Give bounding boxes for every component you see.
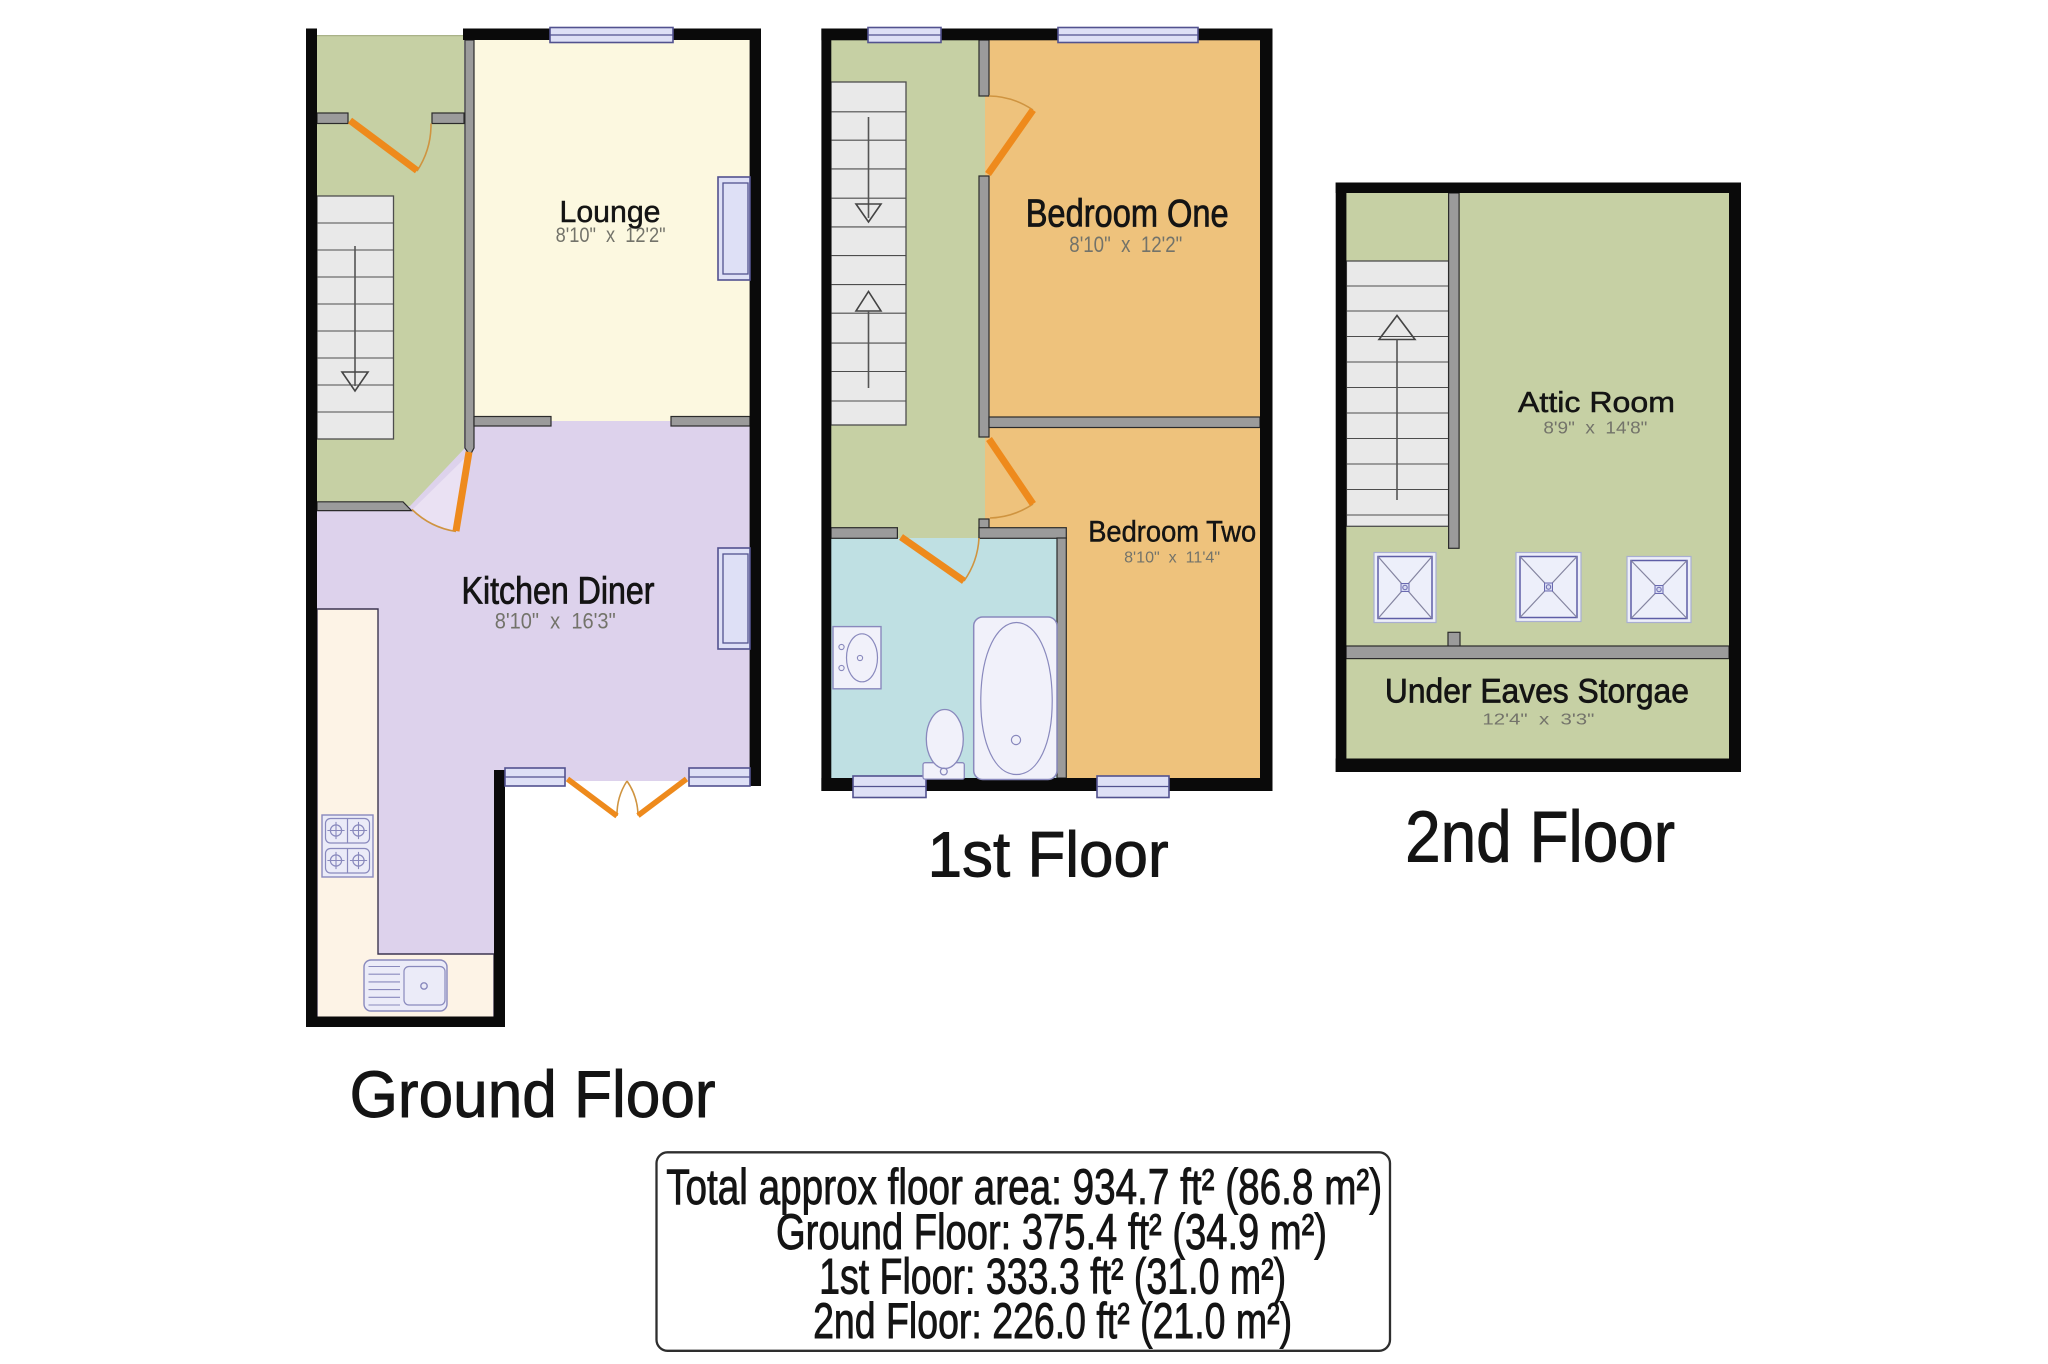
- svg-text:Bedroom One: Bedroom One: [1026, 192, 1229, 235]
- svg-text:Ground Floor: Ground Floor: [350, 1057, 716, 1131]
- svg-text:8'10" x 11'4": 8'10" x 11'4": [1124, 550, 1220, 567]
- svg-text:8'9" x 14'8": 8'9" x 14'8": [1543, 418, 1647, 438]
- svg-text:8'10" x 12'2": 8'10" x 12'2": [1069, 232, 1182, 257]
- svg-text:2nd Floor: 226.0 ft² (21.0 m²): 2nd Floor: 226.0 ft² (21.0 m²): [813, 1293, 1292, 1349]
- svg-text:Attic Room: Attic Room: [1518, 387, 1675, 419]
- svg-text:Under Eaves Storgae: Under Eaves Storgae: [1385, 673, 1689, 711]
- svg-text:1st Floor: 1st Floor: [928, 819, 1169, 891]
- svg-text:Kitchen Diner: Kitchen Diner: [462, 569, 655, 611]
- svg-text:Bedroom Two: Bedroom Two: [1088, 515, 1256, 548]
- svg-text:8'10" x 12'2": 8'10" x 12'2": [556, 224, 666, 247]
- svg-text:2nd Floor: 2nd Floor: [1405, 798, 1675, 878]
- svg-text:8'10" x 16'3": 8'10" x 16'3": [495, 609, 616, 634]
- svg-text:12'4" x 3'3": 12'4" x 3'3": [1482, 711, 1594, 729]
